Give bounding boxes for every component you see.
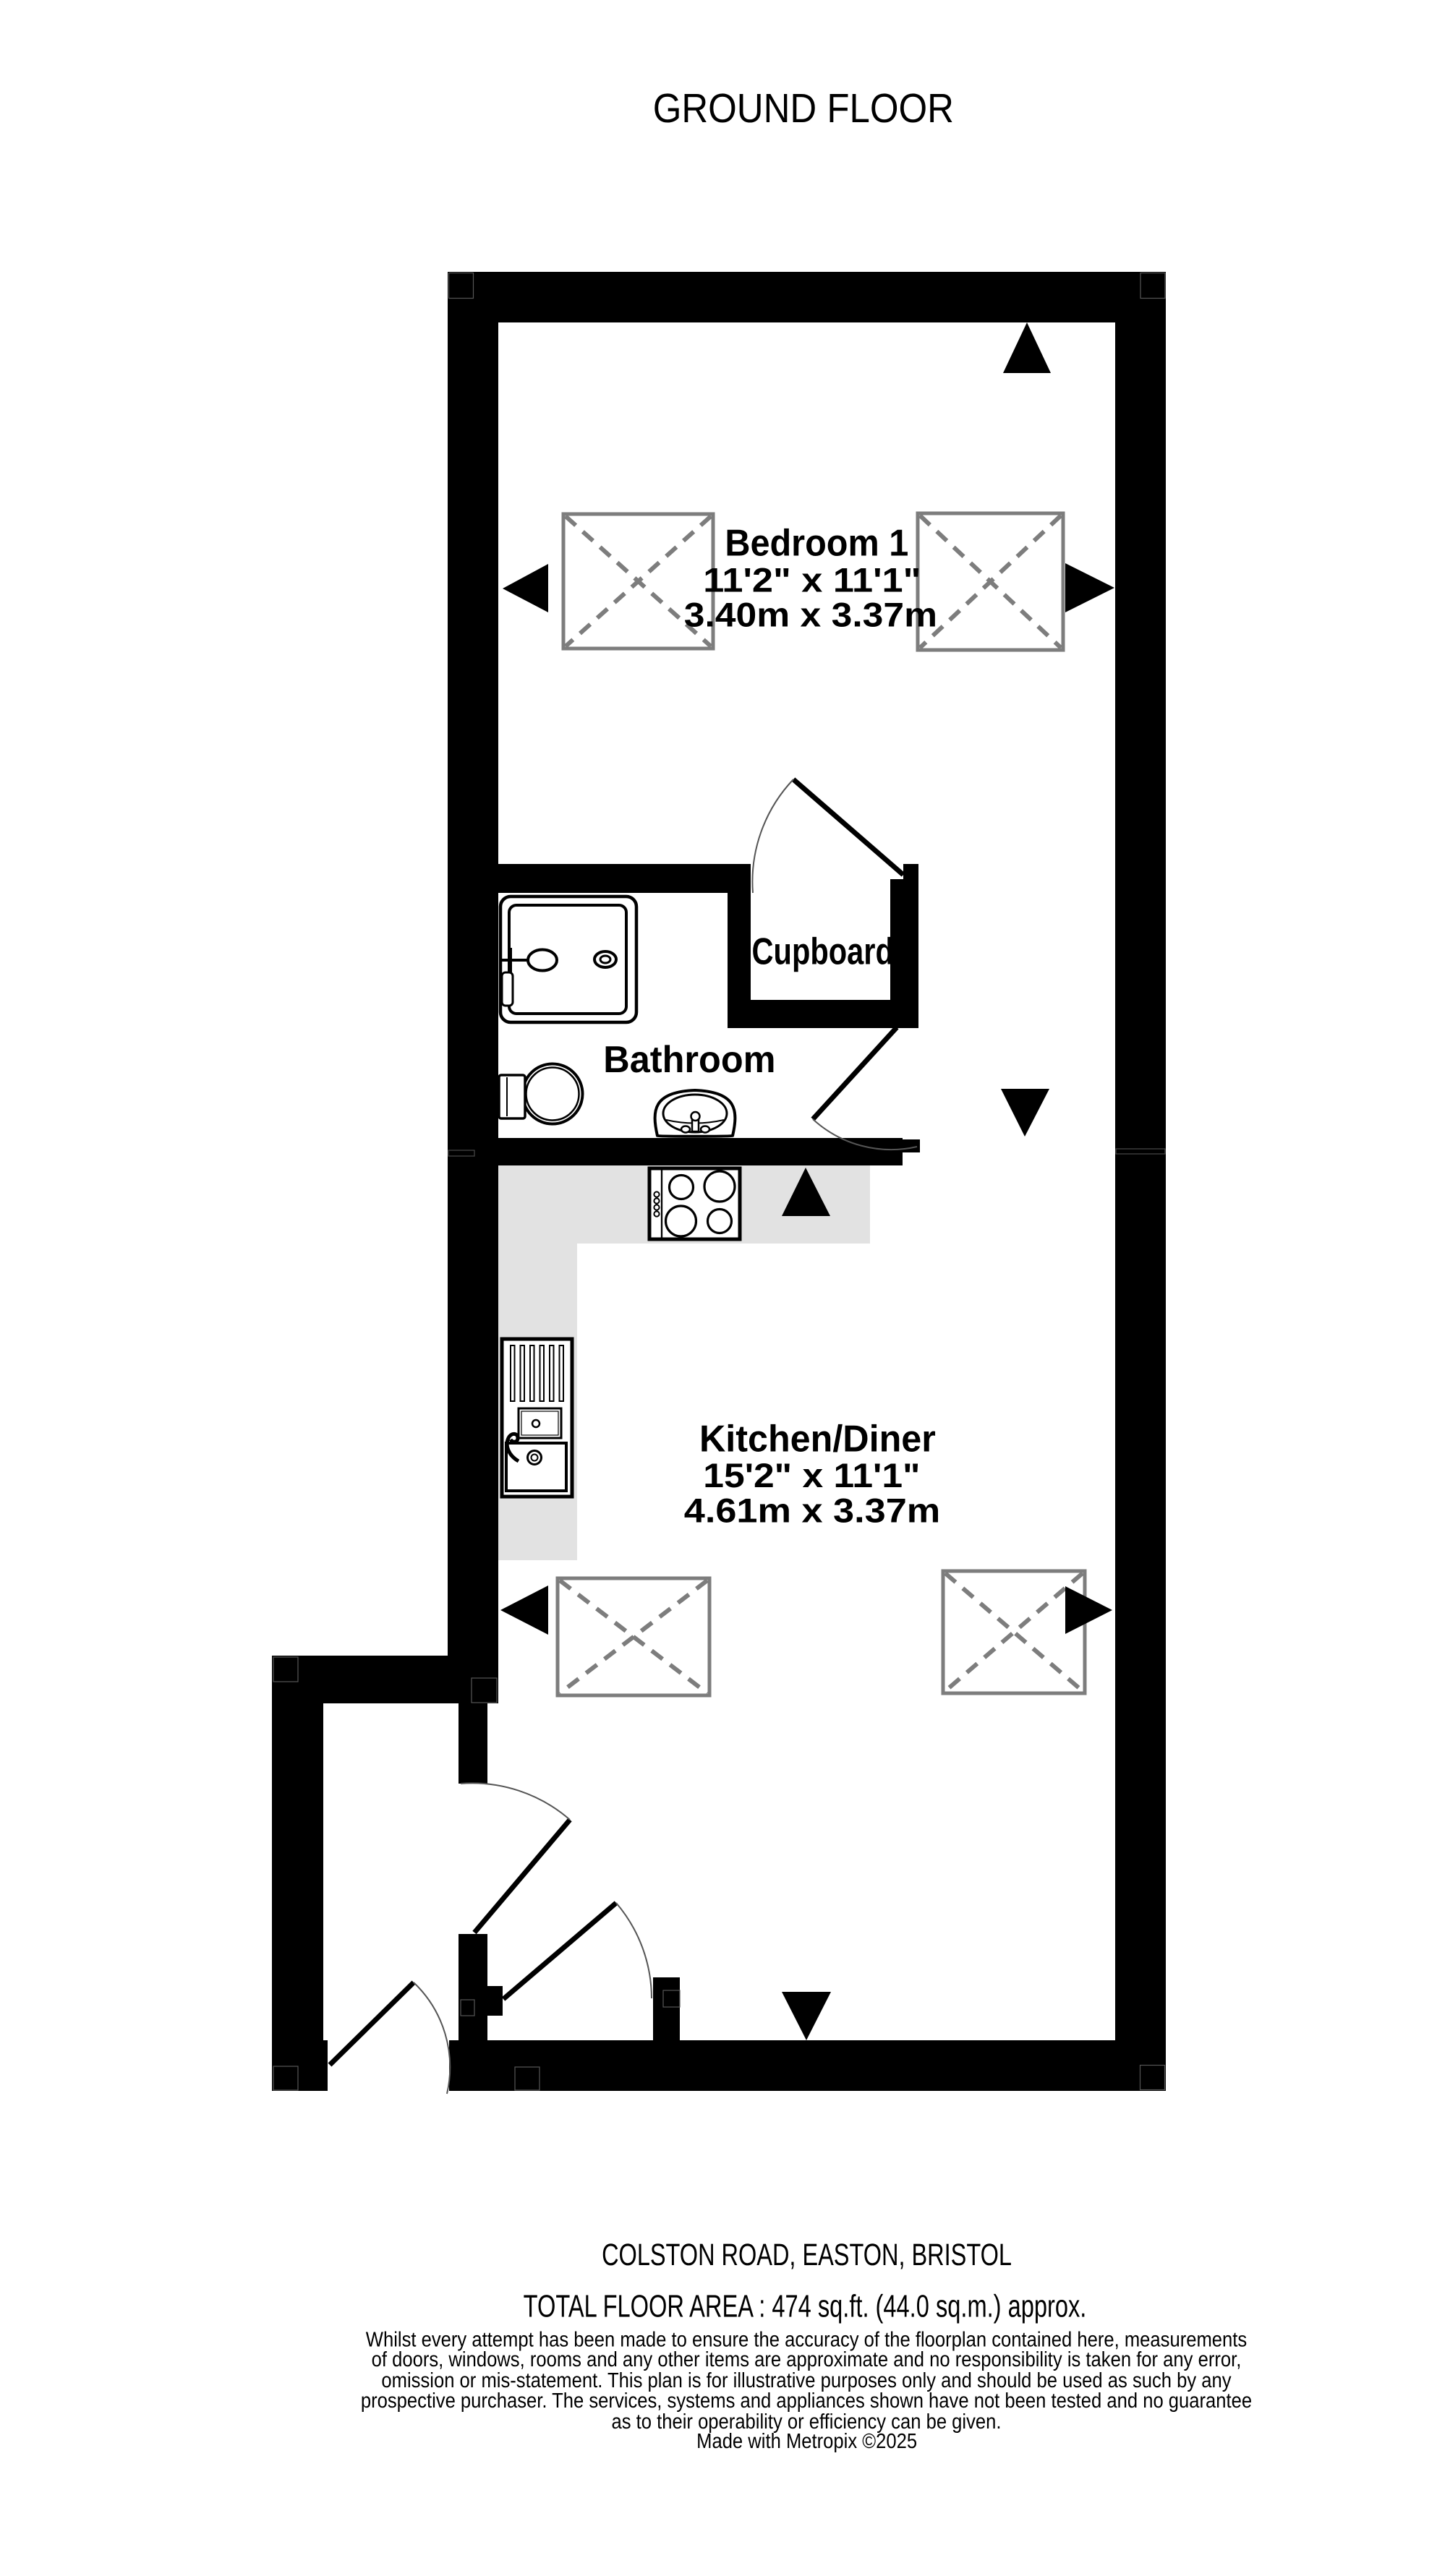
svg-text:Kitchen/Diner: Kitchen/Diner	[699, 1418, 936, 1460]
svg-text:of doors, windows, rooms and a: of doors, windows, rooms and any other i…	[372, 2348, 1242, 2371]
svg-text:GROUND FLOOR: GROUND FLOOR	[653, 86, 954, 132]
svg-text:11'2" x 11'1": 11'2" x 11'1"	[703, 561, 921, 599]
svg-text:15'2" x 11'1": 15'2" x 11'1"	[703, 1457, 920, 1495]
svg-text:COLSTON ROAD, EASTON, BRISTOL: COLSTON ROAD, EASTON, BRISTOL	[602, 2238, 1012, 2272]
svg-text:Cupboard: Cupboard	[751, 931, 893, 973]
svg-text:4.61m x 3.37m: 4.61m x 3.37m	[684, 1492, 940, 1531]
svg-text:prospective purchaser. The ser: prospective purchaser. The services, sys…	[361, 2389, 1252, 2413]
svg-text:Made with Metropix ©2025: Made with Metropix ©2025	[696, 2430, 917, 2453]
svg-text:TOTAL FLOOR AREA : 474 sq.ft.: TOTAL FLOOR AREA : 474 sq.ft. (44.0 sq.m…	[524, 2290, 1087, 2324]
svg-text:Bedroom 1: Bedroom 1	[725, 522, 908, 564]
svg-text:3.40m x 3.37m: 3.40m x 3.37m	[684, 596, 937, 634]
svg-text:Bathroom: Bathroom	[603, 1039, 775, 1081]
